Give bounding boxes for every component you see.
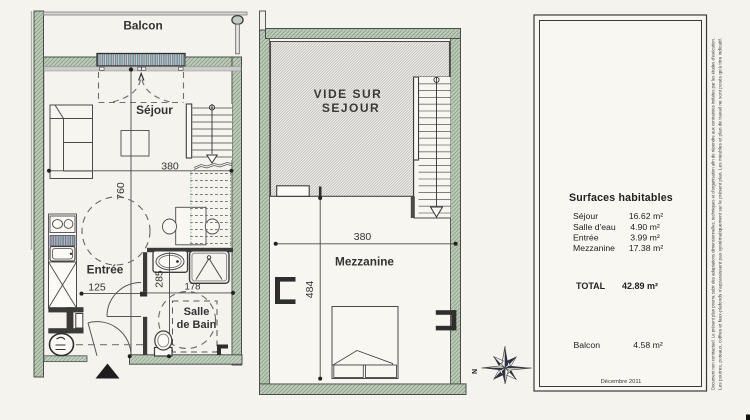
svg-text:Surfaces habitables: Surfaces habitables: [569, 192, 673, 204]
svg-text:VIDE SUR: VIDE SUR: [314, 87, 383, 101]
svg-text:Entrée: Entrée: [573, 233, 599, 243]
svg-text:TOTAL: TOTAL: [576, 281, 606, 291]
svg-text:Mezzanine: Mezzanine: [335, 255, 394, 269]
svg-text:285: 285: [154, 270, 166, 288]
svg-text:Mezzanine: Mezzanine: [573, 243, 615, 253]
svg-text:Séjour: Séjour: [573, 211, 598, 221]
svg-text:Balcon: Balcon: [123, 19, 162, 33]
svg-text:4.58 m²: 4.58 m²: [633, 340, 663, 350]
svg-text:Les poutres, poteaux, coffres: Les poutres, poteaux, coffres et faux-pl…: [718, 38, 723, 390]
svg-text:17.38 m²: 17.38 m²: [629, 243, 663, 253]
svg-text:16.62 m²: 16.62 m²: [629, 211, 663, 221]
svg-text:380: 380: [354, 231, 372, 243]
svg-text:4.90 m²: 4.90 m²: [630, 222, 660, 232]
svg-text:Décembre 2011: Décembre 2011: [601, 379, 642, 385]
svg-text:125: 125: [88, 282, 106, 294]
svg-text:3.99 m²: 3.99 m²: [630, 233, 660, 243]
svg-text:178: 178: [184, 282, 200, 293]
svg-text:Document non contractuel. Le p: Document non contractuel. Le présent pla…: [711, 38, 716, 390]
svg-text:42.89 m²: 42.89 m²: [622, 281, 658, 291]
svg-text:N: N: [472, 369, 479, 374]
svg-text:Salle d'eau: Salle d'eau: [573, 222, 616, 232]
svg-text:Balcon: Balcon: [574, 340, 601, 350]
svg-text:de Bain: de Bain: [177, 319, 217, 331]
svg-text:SEJOUR: SEJOUR: [322, 101, 380, 115]
svg-text:380: 380: [161, 161, 179, 173]
svg-text:484: 484: [304, 281, 316, 299]
svg-text:Séjour: Séjour: [136, 103, 173, 117]
svg-text:Salle: Salle: [184, 306, 210, 318]
